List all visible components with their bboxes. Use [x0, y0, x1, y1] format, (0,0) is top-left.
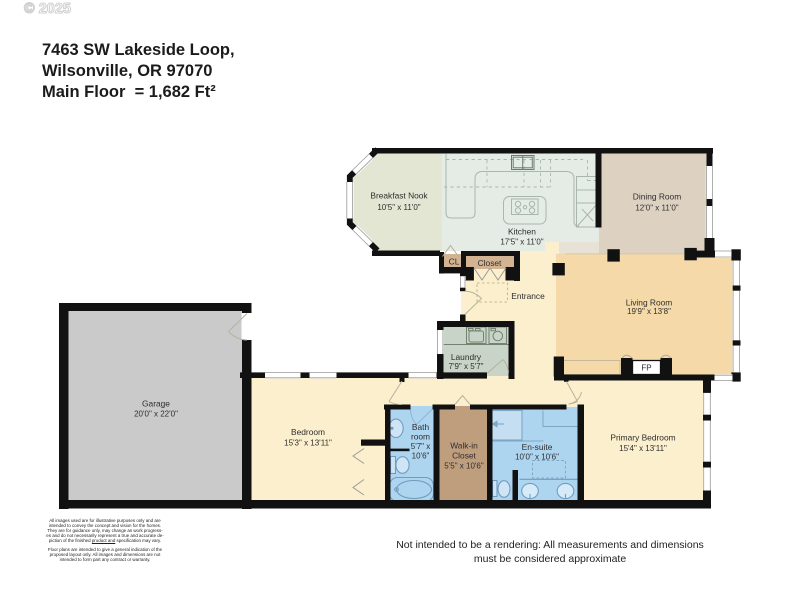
- svg-text:19'9" x 13'8": 19'9" x 13'8": [627, 307, 671, 316]
- svg-text:FP: FP: [641, 364, 651, 373]
- svg-text:15'3" x 13'11": 15'3" x 13'11": [284, 439, 332, 448]
- svg-text:7'9" x 5'7": 7'9" x 5'7": [449, 362, 484, 371]
- svg-text:Living Room: Living Room: [626, 298, 673, 308]
- svg-text:12'0" x 11'0": 12'0" x 11'0": [635, 204, 678, 213]
- svg-text:Bath: Bath: [412, 422, 430, 432]
- svg-text:10'0" x 10'6": 10'0" x 10'6": [515, 453, 559, 462]
- svg-text:20'0" x 22'0": 20'0" x 22'0": [134, 410, 178, 419]
- svg-text:15'4" x 13'11": 15'4" x 13'11": [619, 444, 667, 453]
- svg-text:Bedroom: Bedroom: [291, 427, 325, 437]
- svg-text:Laundry: Laundry: [451, 352, 482, 362]
- svg-text:Kitchen: Kitchen: [508, 227, 536, 237]
- svg-text:Closet: Closet: [478, 258, 502, 268]
- svg-text:Walk-in: Walk-in: [450, 441, 478, 451]
- svg-text:Closet: Closet: [452, 451, 476, 461]
- svg-text:10'5" x 11'0": 10'5" x 11'0": [377, 203, 420, 212]
- svg-text:Primary Bedroom: Primary Bedroom: [610, 433, 675, 443]
- svg-text:Garage: Garage: [142, 399, 170, 409]
- svg-text:En-suite: En-suite: [522, 442, 553, 452]
- svg-text:5'7" x: 5'7" x: [411, 442, 431, 451]
- svg-text:Entrance: Entrance: [511, 291, 545, 301]
- svg-text:Dining Room: Dining Room: [633, 192, 681, 202]
- svg-text:room: room: [411, 432, 430, 442]
- svg-text:Breakfast Nook: Breakfast Nook: [370, 191, 428, 201]
- svg-text:17'5" x 11'0": 17'5" x 11'0": [500, 238, 543, 247]
- svg-text:CL: CL: [449, 257, 460, 267]
- svg-text:5'5" x 10'6": 5'5" x 10'6": [444, 462, 484, 471]
- svg-text:10'6": 10'6": [412, 452, 430, 461]
